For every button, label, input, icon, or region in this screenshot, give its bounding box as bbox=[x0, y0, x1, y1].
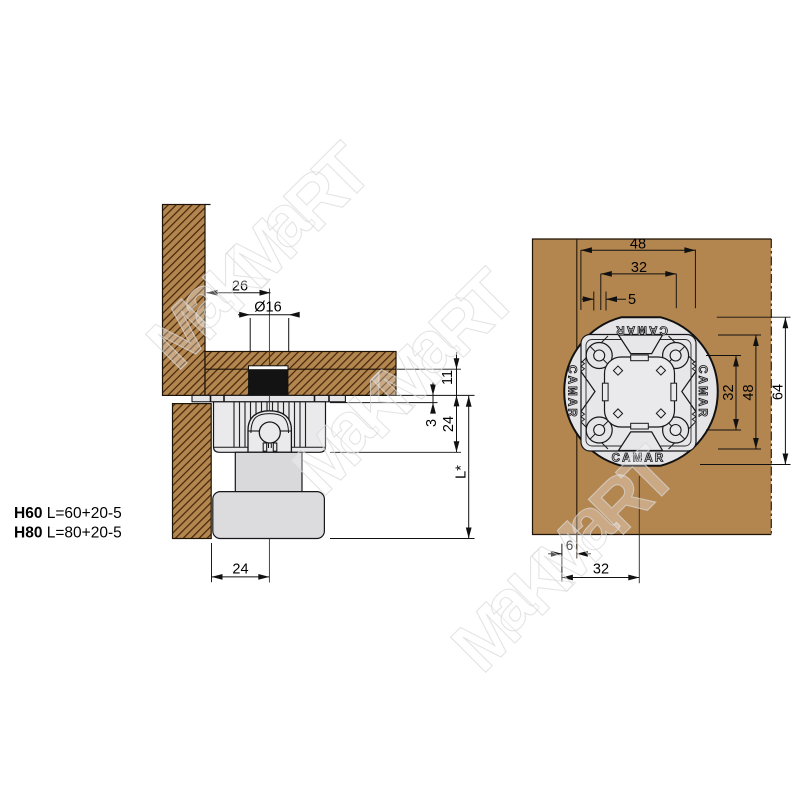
svg-text:64: 64 bbox=[771, 384, 787, 400]
svg-text:32: 32 bbox=[721, 384, 737, 400]
svg-text:5: 5 bbox=[628, 292, 636, 308]
svg-text:3: 3 bbox=[424, 419, 440, 427]
svg-text:H80 L=80+20-5: H80 L=80+20-5 bbox=[14, 525, 122, 542]
svg-text:24: 24 bbox=[441, 416, 457, 432]
svg-text:CAMAR: CAMAR bbox=[696, 365, 708, 419]
svg-text:48: 48 bbox=[741, 384, 757, 400]
svg-text:24: 24 bbox=[232, 562, 248, 578]
svg-text:H60 L=60+20-5: H60 L=60+20-5 bbox=[14, 505, 122, 522]
svg-text:32: 32 bbox=[631, 260, 647, 276]
svg-text:CAMAR: CAMAR bbox=[614, 324, 668, 336]
svg-text:L*: L* bbox=[454, 465, 470, 479]
svg-text:CAMAR: CAMAR bbox=[566, 365, 578, 419]
svg-text:48: 48 bbox=[630, 237, 646, 253]
